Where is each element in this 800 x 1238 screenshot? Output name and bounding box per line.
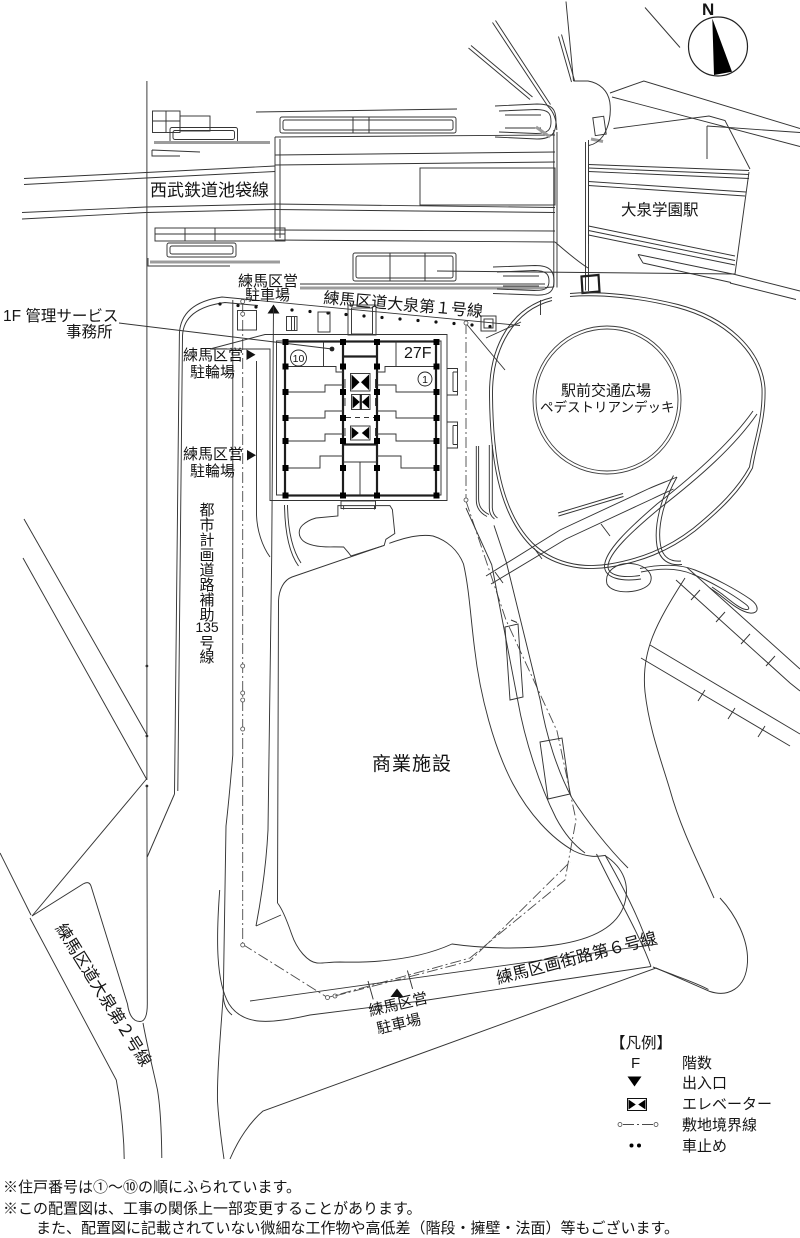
svg-text:敷地境界線: 敷地境界線 <box>682 1116 757 1134</box>
svg-text:F: F <box>631 1055 640 1072</box>
svg-text:ペデストリアンデッキ: ペデストリアンデッキ <box>540 399 674 415</box>
svg-text:練馬区営: 練馬区営 <box>183 347 243 364</box>
svg-text:27F: 27F <box>404 345 432 362</box>
svg-text:練馬区営: 練馬区営 <box>183 446 243 463</box>
svg-text:出入口: 出入口 <box>682 1075 727 1092</box>
svg-text:西武鉄道池袋線: 西武鉄道池袋線 <box>150 181 269 200</box>
svg-text:駐輪場: 駐輪場 <box>190 463 235 480</box>
svg-text:1F 管理サービス: 1F 管理サービス <box>3 307 118 325</box>
svg-text:線: 線 <box>199 649 214 666</box>
svg-text:N: N <box>702 0 714 19</box>
svg-text:135: 135 <box>195 619 219 635</box>
svg-text:※住戸番号は①～⑩の順にふられています。: ※住戸番号は①～⑩の順にふられています。 <box>3 1179 301 1196</box>
svg-text:事務所: 事務所 <box>66 323 113 341</box>
svg-text:エレベーター: エレベーター <box>682 1096 772 1113</box>
svg-text:大泉学園駅: 大泉学園駅 <box>621 201 699 219</box>
svg-text:車止め: 車止め <box>682 1138 727 1155</box>
svg-text:※この配置図は、工事の関係上一部変更することがあります。: ※この配置図は、工事の関係上一部変更することがあります。 <box>3 1201 422 1218</box>
svg-text:1: 1 <box>422 374 428 386</box>
svg-text:10: 10 <box>293 353 305 365</box>
svg-text:商業施設: 商業施設 <box>372 753 452 775</box>
svg-text:階数: 階数 <box>682 1055 712 1072</box>
svg-text:【凡例】: 【凡例】 <box>610 1034 672 1052</box>
svg-text:駅前交通広場: 駅前交通広場 <box>561 382 651 400</box>
svg-text:駐輪場: 駐輪場 <box>190 364 235 381</box>
svg-text:また、配置図に記載されていない微細な工作物や高低差（階段・擁: また、配置図に記載されていない微細な工作物や高低差（階段・擁壁・法面）等もござい… <box>36 1219 679 1237</box>
svg-text:駐車場: 駐車場 <box>245 287 290 304</box>
